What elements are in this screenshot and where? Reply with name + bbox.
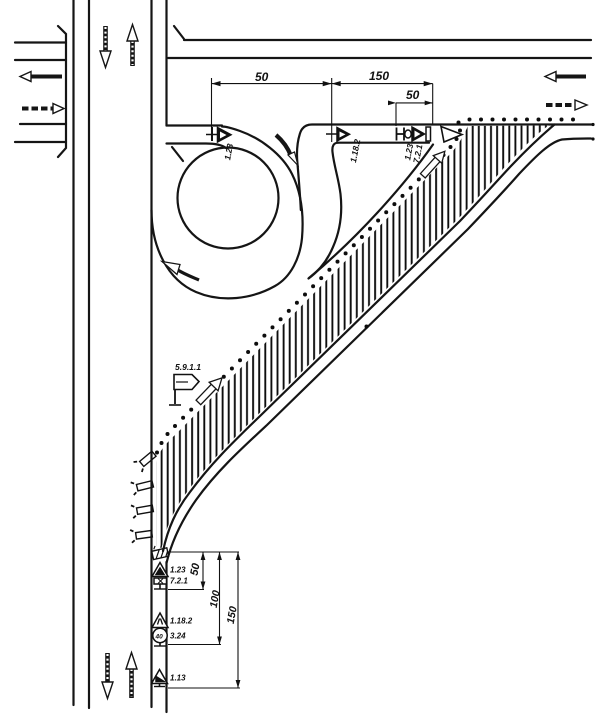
svg-text:1.23: 1.23 bbox=[170, 566, 186, 575]
svg-text:50: 50 bbox=[406, 88, 420, 102]
svg-text:40: 40 bbox=[155, 634, 164, 641]
svg-text:5.9.1.1: 5.9.1.1 bbox=[175, 362, 201, 372]
svg-text:50: 50 bbox=[255, 70, 269, 84]
svg-text:3.24: 3.24 bbox=[170, 632, 186, 641]
svg-text:1.13: 1.13 bbox=[170, 674, 186, 683]
svg-text:1.18.2: 1.18.2 bbox=[170, 617, 193, 626]
svg-text:7.2.1: 7.2.1 bbox=[170, 577, 188, 586]
svg-text:150: 150 bbox=[369, 69, 389, 83]
